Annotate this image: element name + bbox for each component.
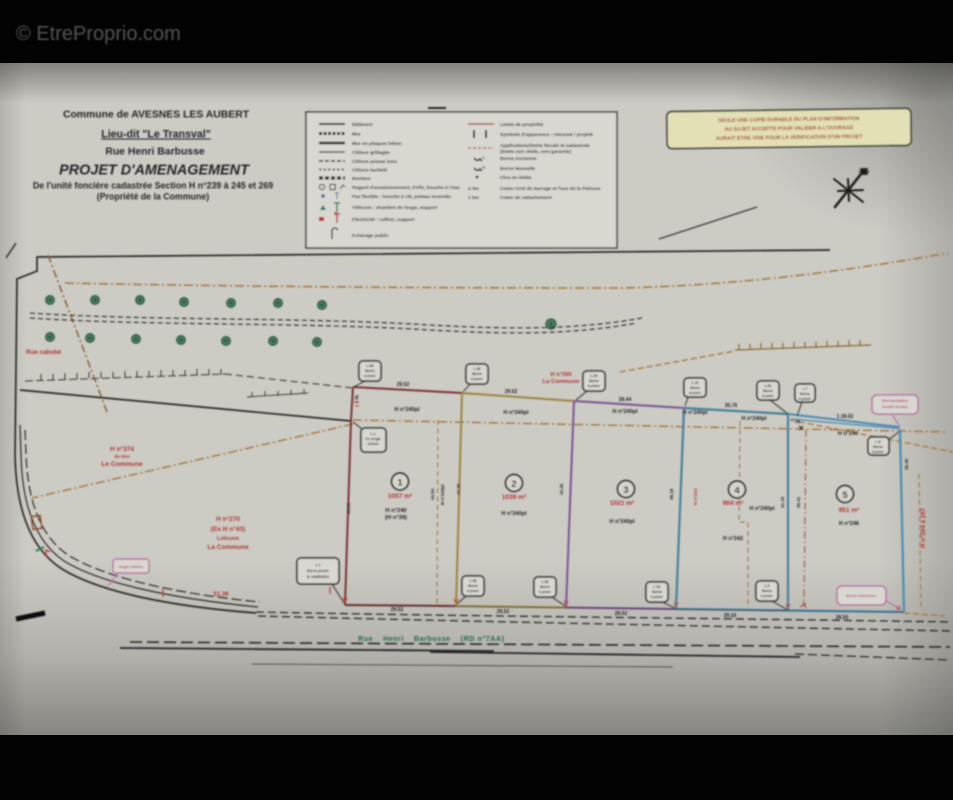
svg-text:Lotissem: Lotissem — [217, 536, 240, 542]
svg-text:L.05: L.05 — [542, 580, 549, 584]
svg-text:N: N — [482, 165, 485, 170]
svg-text:H n°240: H n°240 — [838, 431, 858, 437]
svg-text:Applications/limite fiscale et: Applications/limite fiscale et cadastral… — [500, 143, 590, 149]
svg-text:Electricité : coffret, support: Electricité : coffret, support — [352, 217, 415, 223]
svg-text:H n°246: H n°246 — [839, 521, 859, 527]
svg-text:L.52: L.52 — [654, 585, 661, 589]
svg-text:1021 m²: 1021 m² — [610, 500, 635, 507]
svg-text:Borne Ancienne: Borne Ancienne — [500, 156, 537, 162]
svg-text:La Commune: La Commune — [207, 544, 249, 551]
svg-text:H n°240pl: H n°240pl — [609, 519, 635, 525]
svg-text:29.52: 29.52 — [505, 389, 518, 395]
svg-text:28.52: 28.52 — [615, 611, 628, 617]
svg-text:La Commune: La Commune — [543, 379, 580, 385]
svg-text:Commune de AVESNES LES AUBERT: Commune de AVESNES LES AUBERT — [63, 110, 250, 121]
svg-text:© EtreProprio.com: © EtreProprio.com — [16, 23, 181, 45]
svg-text:29.52: 29.52 — [497, 609, 510, 615]
svg-text:Borne: Borne — [468, 584, 478, 588]
svg-text:H n°240pl: H n°240pl — [749, 506, 775, 512]
svg-text:41.10: 41.10 — [780, 496, 785, 508]
svg-text:Borne: Borne — [589, 379, 599, 383]
svg-text:L.5: L.5 — [765, 584, 770, 588]
svg-text:A: A — [482, 155, 485, 160]
svg-text:Eclairage public: Eclairage public — [352, 233, 389, 239]
svg-text:L.6: L.6 — [876, 440, 881, 444]
svg-text:Télécom : chambre de tirage, s: Télécom : chambre de tirage, support — [352, 205, 438, 211]
svg-text:H n°265: H n°265 — [550, 372, 572, 378]
svg-text:29.52: 29.52 — [391, 607, 404, 613]
svg-text:H n°240pl: H n°240pl — [682, 410, 708, 416]
svg-text:à poser: à poser — [467, 589, 480, 593]
svg-text:Mur en plaques béton: Mur en plaques béton — [352, 141, 402, 147]
svg-text:1 5m: 1 5m — [468, 195, 479, 201]
svg-text:Symbole d'apparence : retrouvé: Symbole d'apparence : retrouvé / projeté — [500, 132, 593, 138]
svg-text:L.05: L.05 — [474, 367, 481, 371]
svg-text:Borne: Borne — [472, 372, 482, 376]
svg-text:Rue Henri Barbusse (R: Rue Henri Barbusse (RD n°7AA) — [358, 634, 505, 643]
svg-text:du titre: du titre — [114, 454, 130, 459]
svg-text:à poser: à poser — [588, 384, 601, 388]
svg-text:H n°243: H n°243 — [693, 488, 698, 505]
svg-text:Rue Henri Barbusse: Rue Henri Barbusse — [105, 147, 205, 158]
svg-text:28.44: 28.44 — [619, 397, 632, 403]
svg-text:44.39: 44.39 — [456, 483, 461, 495]
svg-text:à poser: à poser — [651, 595, 664, 599]
svg-text:H n°270: H n°270 — [216, 515, 240, 523]
svg-text:Borne: Borne — [690, 386, 700, 390]
svg-text:(limite non réelle, non garant: (limite non réelle, non garantie) — [500, 149, 572, 155]
svg-text:H n°374: H n°374 — [110, 445, 134, 453]
svg-text:35.41: 35.41 — [796, 496, 801, 508]
svg-text:Pav flexible : bouche à clé, p: Pav flexible : bouche à clé, poteau ince… — [352, 194, 451, 200]
svg-text:L.52: L.52 — [591, 374, 598, 378]
svg-text:Borne: Borne — [763, 389, 773, 393]
svg-text:H n°240pl: H n°240pl — [612, 409, 638, 415]
svg-text:à poser: à poser — [364, 374, 377, 378]
svg-text:Borne Ancienne: Borne Ancienne — [847, 594, 876, 598]
svg-text:38.18: 38.18 — [669, 488, 674, 500]
svg-text:Borne: Borne — [540, 585, 550, 589]
svg-text:L.1: L.1 — [371, 432, 376, 436]
svg-text:à poser: à poser — [799, 397, 812, 401]
svg-text:Ancilla Section: Ancilla Section — [882, 405, 908, 409]
svg-text:Réurbanisation: Réurbanisation — [882, 399, 908, 403]
svg-text:H n°240pl: H n°240pl — [440, 484, 445, 505]
svg-text:5: 5 — [842, 490, 848, 501]
svg-text:Regard d'assainissement, EV/le: Regard d'assainissement, EV/le, bouche à… — [352, 185, 460, 191]
svg-text:Clôture barbelé: Clôture barbelé — [352, 168, 388, 174]
svg-text:29.16: 29.16 — [724, 613, 737, 619]
svg-text:(Ex H n°43): (Ex H n°43) — [211, 525, 245, 533]
svg-text:PROJET D'AMENAGEMENT: PROJET D'AMENAGEMENT — [59, 163, 250, 179]
svg-text:H n°240pl: H n°240pl — [503, 410, 529, 416]
svg-text:à poser: à poser — [471, 377, 484, 381]
svg-text:L.7: L.7 — [803, 387, 808, 391]
svg-text:L.10: L.10 — [692, 381, 699, 385]
svg-text:1039 m²: 1039 m² — [502, 494, 527, 501]
svg-text:1 28.52: 1 28.52 — [837, 414, 854, 420]
svg-text:Borne posée: Borne posée — [307, 569, 329, 573]
svg-text:L.63: L.63 — [367, 364, 374, 368]
svg-text:951 m²: 951 m² — [839, 507, 860, 514]
svg-text:1057 m²: 1057 m² — [388, 493, 413, 500]
svg-text:Cotes rond de barrage et l'axe: Cotes rond de barrage et l'axe de la Pel… — [500, 186, 601, 192]
svg-text:H n°240pl: H n°240pl — [394, 407, 420, 413]
svg-text:clôture: clôture — [367, 442, 378, 446]
svg-text:28.55: 28.55 — [836, 615, 849, 621]
svg-text:35.40: 35.40 — [904, 458, 909, 470]
svg-text:le 14/05/2014: le 14/05/2014 — [307, 575, 329, 579]
svg-text:L.58: L.58 — [470, 579, 477, 583]
svg-text:904 m²: 904 m² — [723, 500, 744, 507]
svg-text:De l'unité foncière cadastrée: De l'unité foncière cadastrée Section H … — [33, 181, 273, 191]
svg-text:29.52: 29.52 — [397, 382, 410, 388]
svg-text:Borne: Borne — [800, 392, 810, 396]
svg-text:Clôture grillagée: Clôture grillagée — [352, 150, 390, 156]
svg-text:à poser: à poser — [761, 594, 774, 598]
svg-text:2: 2 — [511, 479, 516, 490]
svg-text:Bordure: Bordure — [352, 176, 371, 182]
svg-text:Mur: Mur — [352, 132, 361, 138]
svg-text:Limite de propriété: Limite de propriété — [500, 122, 544, 128]
svg-text:L.52: L.52 — [765, 384, 772, 388]
svg-text:Le Commune: Le Commune — [101, 461, 143, 468]
svg-text:(H n°39): (H n°39) — [385, 515, 407, 521]
svg-text:Lieu-dit "Le Transval": Lieu-dit "Le Transval" — [101, 129, 211, 141]
svg-text:H n°242: H n°242 — [723, 536, 743, 542]
svg-text:Cotes de rattachement: Cotes de rattachement — [500, 195, 552, 201]
svg-text:Borne: Borne — [762, 589, 772, 593]
svg-text:à poser: à poser — [872, 450, 885, 454]
svg-text:44.54: 44.54 — [430, 488, 435, 500]
svg-text:à poser: à poser — [539, 590, 552, 594]
svg-text:(Propriété de la Commune): (Propriété de la Commune) — [97, 192, 209, 202]
svg-text:4 3m: 4 3m — [468, 186, 479, 192]
svg-text:Clôture poteau bois: Clôture poteau bois — [352, 159, 397, 165]
svg-text:à poser: à poser — [689, 391, 702, 395]
svg-text:Borne: Borne — [652, 590, 662, 594]
svg-text:H n°240: H n°240 — [385, 508, 406, 514]
svg-text:35.76: 35.76 — [725, 403, 738, 409]
svg-text:3: 3 — [623, 485, 628, 496]
svg-text:51.39: 51.39 — [213, 592, 229, 598]
svg-text:H n°240pl: H n°240pl — [741, 416, 767, 422]
svg-text:Clou en limite: Clou en limite — [500, 175, 532, 181]
svg-text:Borne Nouvelle: Borne Nouvelle — [500, 166, 536, 172]
svg-text:43.40: 43.40 — [559, 483, 564, 495]
svg-text:4: 4 — [734, 486, 740, 497]
svg-text:H n°264 à 267: H n°264 à 267 — [920, 507, 927, 548]
svg-text:H n°240pl: H n°240pl — [501, 511, 527, 517]
svg-text:Angle clôture: Angle clôture — [119, 565, 143, 569]
svg-text:1: 1 — [397, 478, 403, 489]
svg-text:Rue cabubé: Rue cabubé — [26, 349, 62, 356]
svg-text:Borne: Borne — [873, 445, 883, 449]
svg-text:Fer Angle: Fer Angle — [365, 437, 381, 441]
svg-text:35.50: 35.50 — [346, 502, 351, 514]
svg-text:L.1: L.1 — [315, 563, 320, 567]
svg-text:Borne: Borne — [365, 369, 375, 373]
svg-text:Bâtiment: Bâtiment — [352, 122, 373, 128]
svg-text:à poser: à poser — [762, 394, 775, 398]
